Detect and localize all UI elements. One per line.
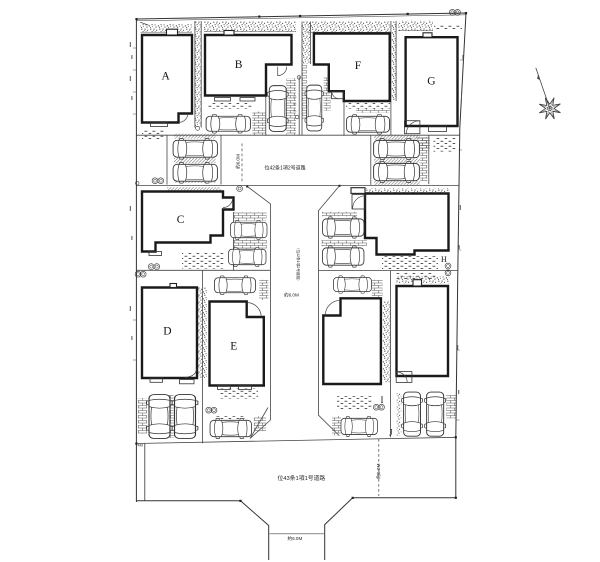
svg-text:約6.0M: 約6.0M	[288, 535, 303, 542]
svg-text:F: F	[355, 60, 361, 72]
svg-text:E: E	[230, 340, 237, 352]
svg-text:4M: 4M	[138, 444, 143, 448]
svg-text:C: C	[177, 214, 185, 226]
svg-text:約6.0M: 約6.0M	[284, 292, 299, 299]
svg-text:位42条1項2号道路: 位42条1項2号道路	[265, 165, 306, 172]
svg-text:I: I	[381, 395, 384, 405]
svg-text:約6.0M: 約6.0M	[375, 464, 382, 479]
svg-text:位43条1項1号道路: 位43条1項1号道路	[278, 474, 326, 482]
svg-text:（位42条1項2号道路）: （位42条1項2号道路）	[296, 246, 301, 283]
svg-text:J: J	[389, 428, 393, 438]
svg-text:H: H	[441, 255, 447, 264]
svg-text:A: A	[162, 71, 171, 83]
svg-text:約6.0M: 約6.0M	[235, 154, 242, 169]
svg-text:G: G	[427, 76, 435, 88]
svg-text:B: B	[235, 59, 243, 71]
svg-text:D: D	[163, 325, 171, 337]
